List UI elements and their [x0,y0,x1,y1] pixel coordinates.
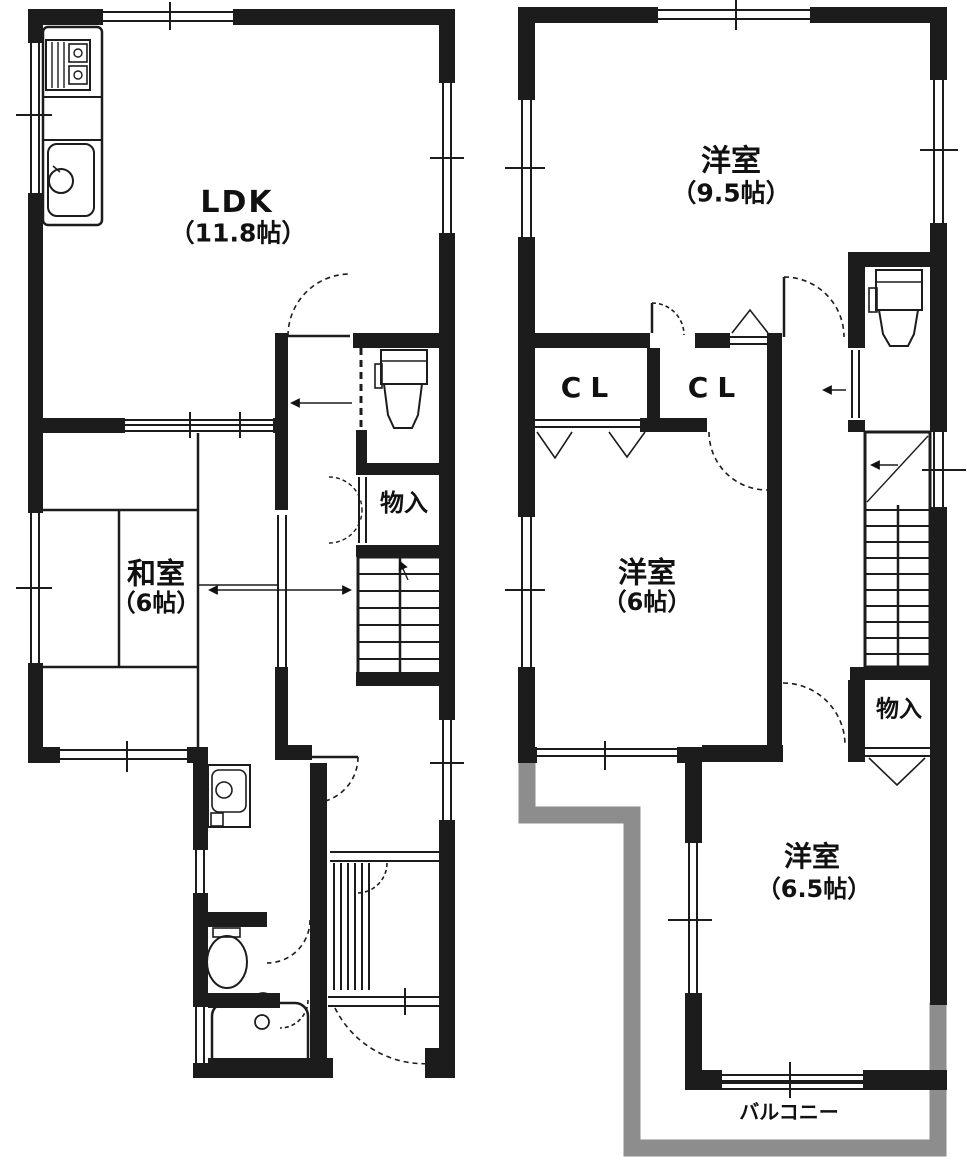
window-2f-right-top [920,80,958,223]
closet-small-door [652,303,684,335]
toilet-1f-icon [375,350,427,428]
room-label-storage-2f: 物入 [876,699,922,722]
kitchen-sink-icon [48,144,94,216]
bedroom95-door [784,277,844,337]
bedroom6-door [709,432,767,490]
walls-1f-interior [43,333,455,1058]
window-room65-left [668,843,712,993]
wc-door [267,920,310,963]
window-washroom-left [193,850,208,893]
room-label-washitsu: 和室 [127,560,185,589]
closet-right-door [730,310,770,344]
front-door-threshold [328,988,443,1015]
window-washitsu-bottom [60,741,187,772]
window-hall-right [430,720,464,820]
room-label-storage-1f: 物入 [380,491,428,515]
window-2f-top [658,0,810,30]
window-bath-left [193,1007,208,1063]
window-ldk-top [103,2,233,30]
window-washitsu-left [16,513,52,663]
window-2f-left-top [505,100,545,237]
stairs-1f [358,557,443,677]
front-door [335,1008,437,1064]
room-size-ldk: （11.8帖） [170,221,307,246]
room-size-bedroom-small: （6.5帖） [757,877,872,901]
window-balcony-door [697,1062,905,1098]
bedroom65-door [783,683,845,745]
wc-toilet-icon [207,928,247,988]
stairs-2f [865,432,930,667]
room-size-washitsu: （6帖） [112,591,201,615]
washbasin-icon [208,765,250,827]
room-label-ldk: LDK [200,188,273,218]
room-label-bedroom-large: 洋室 [701,147,761,177]
toilet-2f-door [824,350,859,418]
entrance-floor-hatch [334,863,369,990]
storage-2f-door [865,748,930,785]
window-ldk-right [430,83,464,233]
window-2f-left-mid [505,517,545,667]
ldk-hall-door [288,274,350,336]
closet-left-door [533,420,645,458]
room-label-closet-left: CL [561,374,617,402]
toilet-pocket-door [292,348,361,430]
windows-1f [16,2,464,1063]
toilet-2f-icon [869,270,922,346]
storage-1f-doors [329,477,366,543]
door-arcs [267,274,845,1064]
washitsu-hall-sliding-door [210,515,350,667]
floorplan-page: LDK （11.8帖） 和室 （6帖） 物入 洋室 （9.5帖） CL CL 洋… [0,0,967,1170]
room-label-bedroom-small: 洋室 [784,843,840,871]
room-label-bedroom-mid: 洋室 [618,559,676,588]
room-label-closet-right: CL [688,374,744,402]
room-label-balcony: バルコニー [739,1102,839,1122]
stove-icon [46,40,90,90]
window-room6-bottom [537,741,677,770]
entrance-step [330,852,440,861]
balcony-rail [527,763,938,1148]
room-size-bedroom-mid: （6帖） [603,590,692,614]
room-size-bedroom-large: （9.5帖） [671,181,790,206]
kitchen-counter [43,27,102,225]
